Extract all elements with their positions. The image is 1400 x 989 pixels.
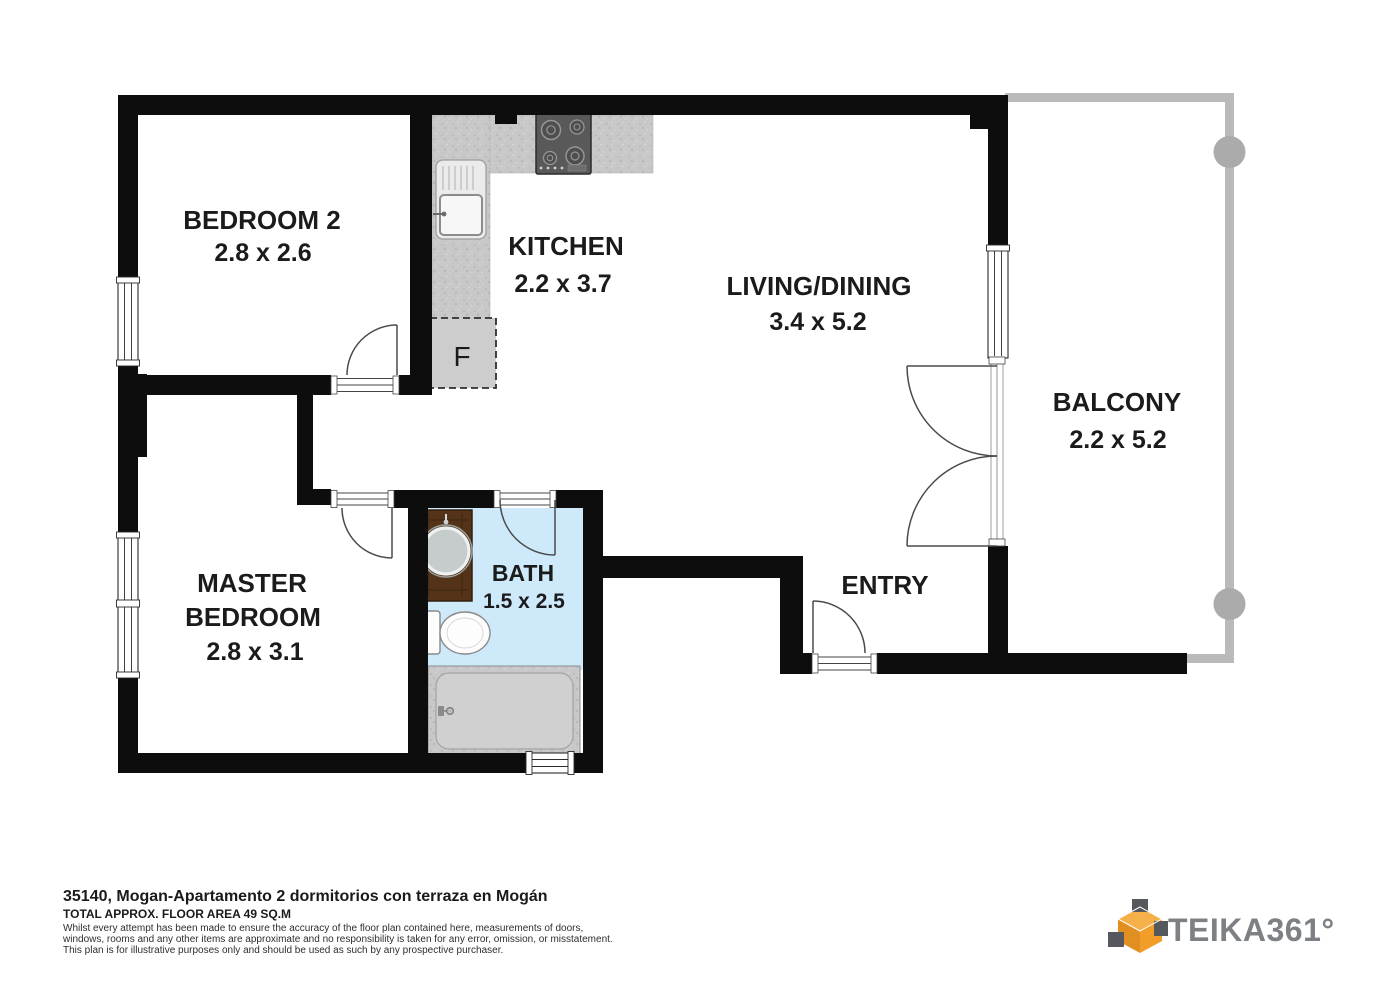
label-master-1: MASTER [197, 568, 307, 598]
fridge: F [430, 318, 496, 388]
dims-living: 3.4 x 5.2 [769, 308, 866, 336]
window-bedroom2 [117, 277, 140, 366]
dims-bath: 1.5 x 2.5 [483, 590, 565, 613]
disclaimer-line-1: Whilst every attempt has been made to en… [63, 923, 583, 934]
bathtub [428, 666, 580, 755]
wall-segment [583, 490, 603, 773]
wall-segment [428, 490, 494, 508]
label-bedroom2: BEDROOM 2 [183, 205, 340, 235]
french-doors-balcony [907, 357, 1005, 546]
dims-master: 2.8 x 3.1 [206, 638, 303, 666]
balcony-railing [1005, 93, 1246, 663]
floor-area-text: TOTAL APPROX. FLOOR AREA 49 SQ.M [63, 907, 291, 921]
door-bedroom2 [347, 325, 397, 375]
railing-post-top [1214, 136, 1246, 168]
label-master-2: BEDROOM [185, 602, 321, 632]
teika-cube-icon [1108, 899, 1168, 953]
threshold-master [331, 490, 394, 508]
vanity-sink [423, 528, 469, 574]
label-kitchen: KITCHEN [508, 231, 624, 261]
door-entry [813, 601, 865, 653]
wall-segment [297, 395, 313, 505]
threshold-bedroom2 [331, 375, 399, 395]
wall-segment [408, 490, 428, 753]
wall-segment [313, 489, 331, 505]
teika-logo: TEIKA361° [1108, 899, 1335, 953]
dims-kitchen: 2.2 x 3.7 [514, 270, 611, 298]
door-master [342, 508, 392, 558]
wall-segment [574, 753, 603, 773]
logo-text: TEIKA361° [1168, 912, 1335, 948]
wall-segment [780, 578, 803, 658]
room-labels: BEDROOM 2 2.8 x 2.6 KITCHEN 2.2 x 3.7 LI… [183, 205, 1181, 666]
fridge-label: F [453, 341, 470, 372]
floor-plan-canvas: F [0, 0, 1400, 989]
wall-segment [877, 653, 1187, 674]
dims-balcony: 2.2 x 5.2 [1069, 426, 1166, 454]
wall-segment [118, 375, 331, 395]
listing-title: 35140, Mogan-Apartamento 2 dormitorios c… [63, 888, 548, 905]
wall-segment [583, 556, 803, 578]
stove [536, 112, 591, 174]
kitchen-sink [433, 160, 486, 239]
floor-plan-page: F [0, 0, 1400, 989]
tub-faucet [438, 706, 444, 716]
disclaimer-line-2: windows, rooms and any other items are a… [62, 934, 613, 945]
wall-segment [118, 95, 1008, 115]
wall-segment [988, 115, 1008, 247]
window-living [987, 245, 1010, 358]
toilet [421, 611, 490, 654]
window-master [117, 532, 140, 678]
dims-bedroom2: 2.8 x 2.6 [214, 239, 311, 267]
disclaimer-line-3: This plan is for illustrative purposes o… [63, 945, 503, 956]
window-bath [526, 752, 574, 775]
label-entry: ENTRY [841, 570, 928, 600]
threshold-bath [494, 490, 556, 508]
wall-segment [410, 115, 432, 395]
wall-segment [118, 676, 138, 773]
label-living: LIVING/DINING [727, 271, 912, 301]
railing-post-bottom [1214, 588, 1246, 620]
wall-segment [118, 753, 528, 773]
footer: 35140, Mogan-Apartamento 2 dormitorios c… [62, 888, 613, 956]
wall-segment [118, 95, 138, 279]
wall-segment [556, 490, 583, 508]
wall-segment [495, 115, 517, 124]
label-bath: BATH [492, 560, 554, 586]
wall-segment [399, 375, 432, 395]
threshold-entry [812, 653, 877, 674]
walls [118, 95, 1187, 773]
label-balcony: BALCONY [1053, 387, 1182, 417]
